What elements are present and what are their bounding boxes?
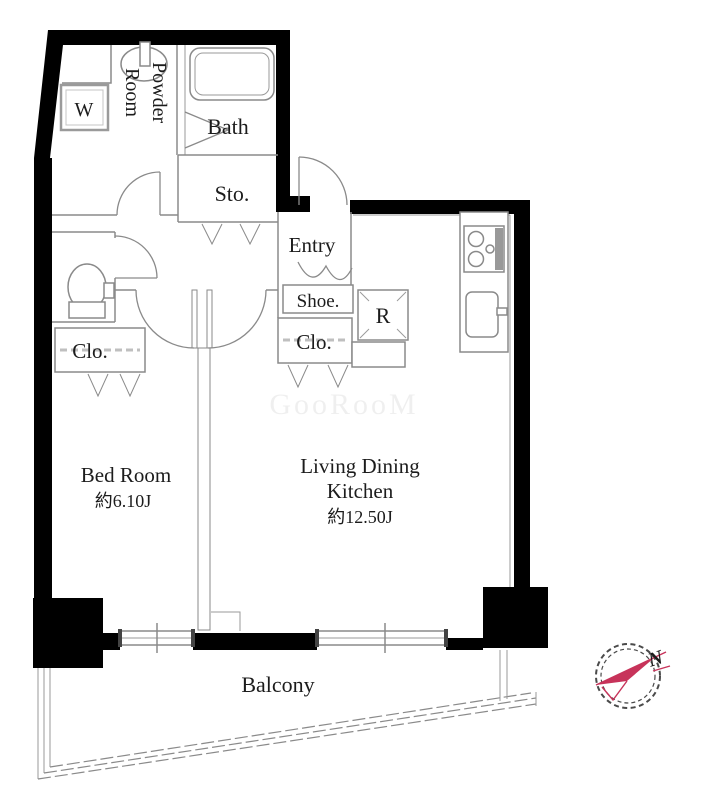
stove-grill xyxy=(495,228,503,270)
storage-label: Sto. xyxy=(215,181,250,206)
watermark: GooRooM xyxy=(269,388,418,421)
bottom-left-column xyxy=(33,598,103,668)
shoe-label: Shoe. xyxy=(297,291,340,312)
washer-label: W xyxy=(75,99,94,121)
bedroom-closet-label: Clo. xyxy=(72,339,108,363)
floor-plan-svg: N GooRooM W Powder Room Bath Sto. Entry … xyxy=(0,0,701,810)
toilet-handle xyxy=(104,283,114,298)
bathtub xyxy=(190,48,274,100)
refrigerator-label: R xyxy=(376,303,391,328)
counter-box xyxy=(352,342,405,367)
powder-room-label-1: Powder xyxy=(148,62,170,123)
bath-label: Bath xyxy=(207,114,249,139)
ldk-closet-label: Clo. xyxy=(296,330,332,354)
sink-faucet xyxy=(497,308,507,315)
left-wall xyxy=(34,158,52,600)
right-wall xyxy=(514,200,530,600)
partition-wall xyxy=(198,348,210,630)
balcony-label: Balcony xyxy=(241,672,314,697)
wc-door-swing xyxy=(115,236,157,278)
service-right-wall xyxy=(276,30,290,212)
balcony-rails xyxy=(38,650,536,779)
bedroom-size-label: 約6.10J xyxy=(95,491,152,511)
floor-plan: N GooRooM W Powder Room Bath Sto. Entry … xyxy=(0,0,701,810)
ldk-door-leaf xyxy=(207,290,212,348)
genkan-step xyxy=(298,262,352,280)
toilet-tank xyxy=(69,302,105,318)
ldk-label-1: Living Dining xyxy=(300,454,420,478)
compass: N xyxy=(596,644,670,708)
entry-label: Entry xyxy=(289,233,336,257)
bedroom-closet-hatch xyxy=(88,374,108,396)
storage-hatch xyxy=(202,224,222,244)
ldk-label-2: Kitchen xyxy=(327,479,394,503)
ldk-door-swing xyxy=(208,290,266,348)
kitchen-sink xyxy=(466,292,498,337)
bottom-wall-seg3 xyxy=(446,638,483,650)
bottom-wall-seg1 xyxy=(103,633,120,650)
ldk-closet-hatch xyxy=(288,365,308,387)
ldk-size-label: 約12.50J xyxy=(327,507,393,527)
bottom-wall-seg2 xyxy=(193,633,317,650)
powder-door-swing xyxy=(117,172,160,215)
powder-room-label-2: Room xyxy=(121,68,143,117)
bottom-right-column xyxy=(483,587,548,648)
entry-wall-foot xyxy=(276,196,310,212)
bedroom-label: Bed Room xyxy=(81,463,171,487)
bedroom-door-leaf xyxy=(192,290,197,348)
